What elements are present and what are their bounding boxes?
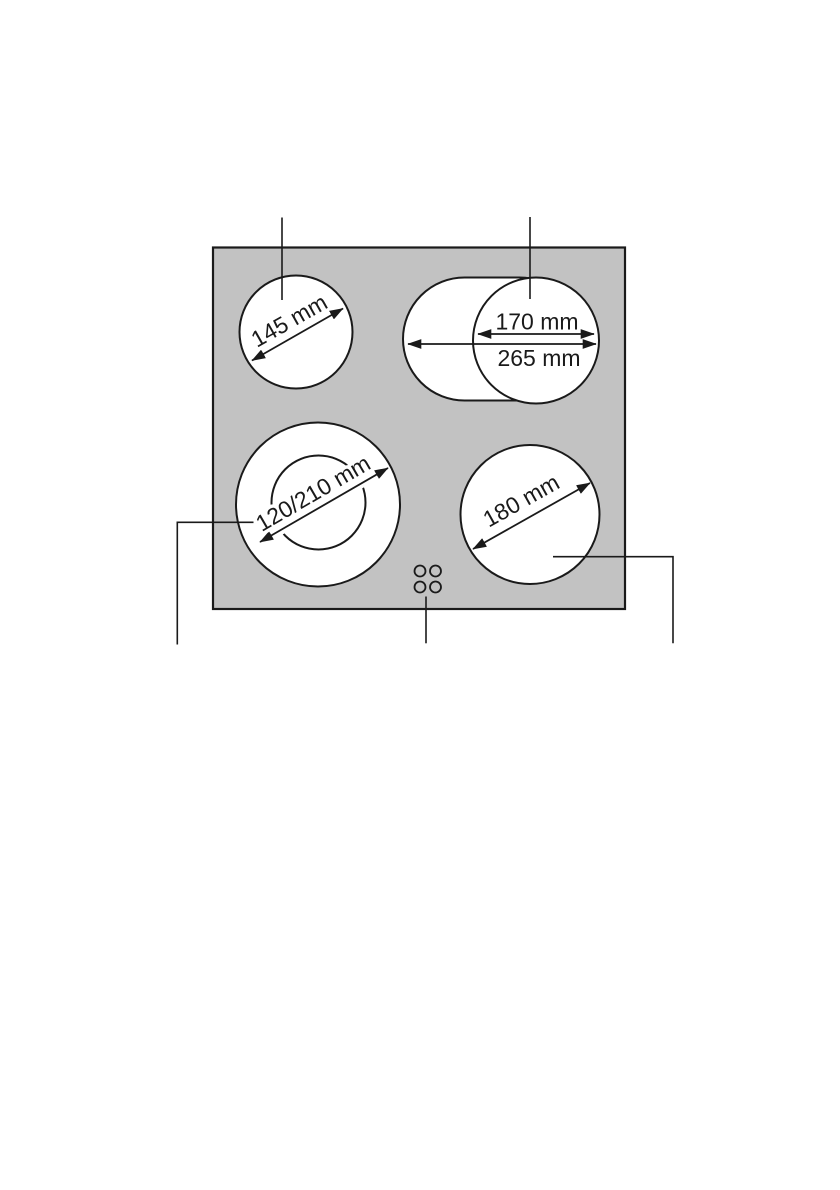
cooktop-diagram: 145 mm 170 mm 265 mm 120/210 mm 180 mm xyxy=(0,0,840,1190)
dimension-label-265: 265 mm xyxy=(497,345,580,371)
zone-back-right-circle xyxy=(473,278,599,404)
dimension-label-170: 170 mm xyxy=(495,309,578,335)
cooktop-diagram-svg: 145 mm 170 mm 265 mm 120/210 mm 180 mm xyxy=(0,0,840,1190)
